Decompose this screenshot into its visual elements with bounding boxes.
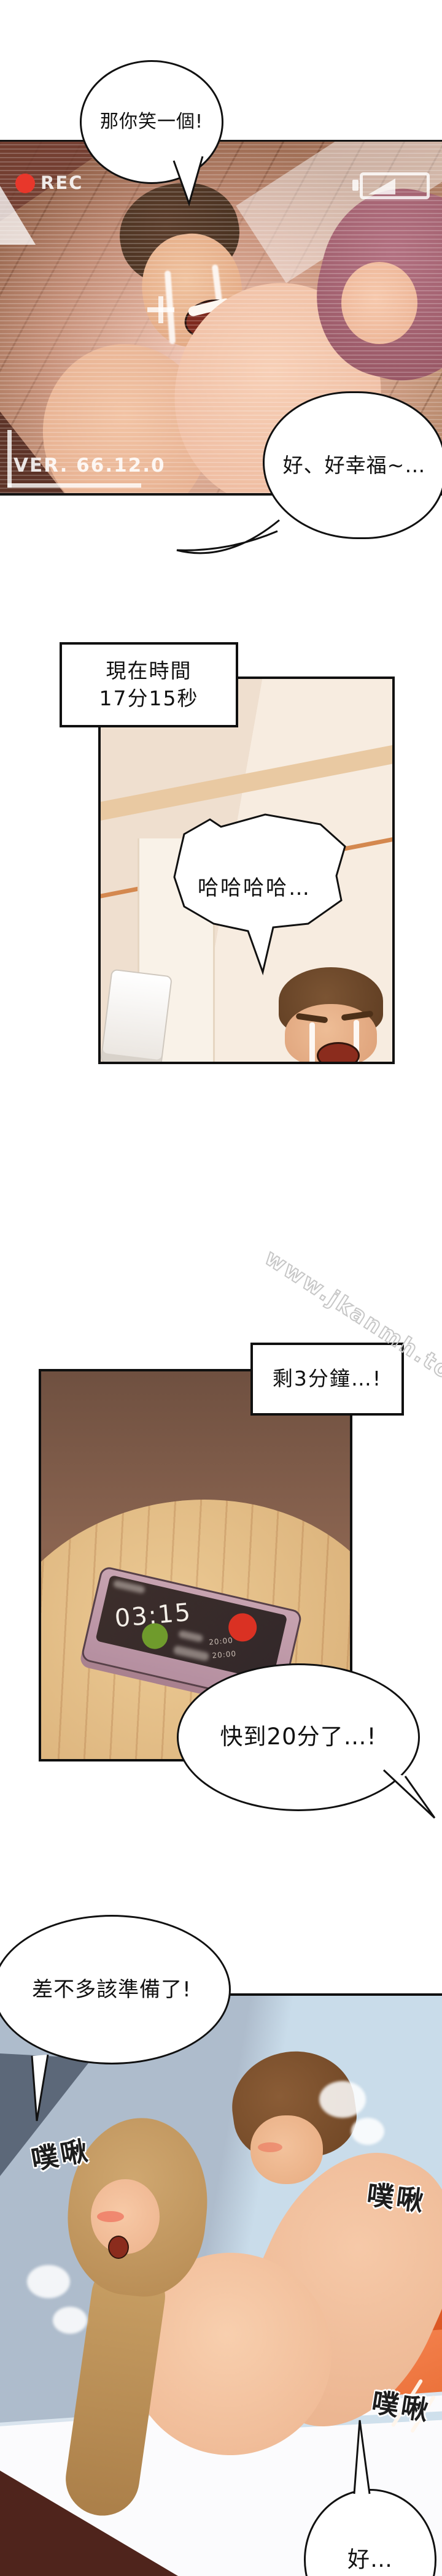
phone-alarm-label: 20:00 xyxy=(209,1636,234,1646)
speech-bubble-smile: 那你笑一個! xyxy=(80,60,223,184)
narration-line: 剩3分鐘…! xyxy=(273,1365,382,1393)
woman-mouth-shape xyxy=(108,2236,129,2259)
speech-text: 差不多該準備了! xyxy=(32,1977,192,2003)
man-teeth xyxy=(187,297,231,317)
speech-text: 好、好幸福~… xyxy=(283,453,426,478)
man-laughing-mouth xyxy=(317,1042,360,1064)
man-hair-shape xyxy=(110,172,249,296)
narration-line: 17分15秒 xyxy=(99,685,199,713)
panel-room-scene xyxy=(98,677,395,1064)
rec-dot-icon xyxy=(15,174,35,193)
blurred-status-text xyxy=(113,1579,145,1593)
panel-border xyxy=(216,1993,442,1996)
rec-label: REC xyxy=(41,172,83,193)
tear-streak xyxy=(212,264,227,338)
ceiling-trim-shape xyxy=(98,736,395,824)
speech-bubble-prepare: 差不多該準備了! xyxy=(0,1915,231,2064)
narration-line: 現在時間 xyxy=(106,657,192,685)
speech-bubble-twenty: 快到20分了…! xyxy=(177,1663,420,1811)
camera-corner-bracket-icon xyxy=(7,430,12,488)
light-streak xyxy=(236,140,442,283)
woman-hair-shape xyxy=(299,172,442,397)
narration-box-time: 現在時間 17分15秒 xyxy=(60,642,238,727)
man-laughing-mouth xyxy=(180,294,242,343)
blurred-caller-text xyxy=(178,1630,204,1643)
phone-alarm-label: 20:00 xyxy=(212,1649,237,1660)
laugh-bubble-text: 哈哈哈哈… xyxy=(198,871,311,901)
steam-puff xyxy=(319,2081,366,2118)
speech-text: 那你笑一個! xyxy=(100,110,203,134)
man-face-shape xyxy=(135,228,249,354)
blurred-caller-text xyxy=(173,1645,210,1662)
speech-text: 好… xyxy=(347,2546,393,2574)
blush-mark xyxy=(97,2211,124,2222)
speech-bubble-happy: 好、好幸福~… xyxy=(263,391,442,539)
webtoon-page: REC VER. 66.12.0 那你笑一個! 好、好幸福~… 現在時間 17分… xyxy=(0,0,442,2576)
camera-version-label: VER. 66.12.0 xyxy=(14,454,166,477)
steam-puff xyxy=(27,2265,70,2298)
sfx-text: 噗啾 xyxy=(365,2172,428,2218)
camera-corner-bracket-icon xyxy=(7,483,141,488)
camera-corner-bracket-icon xyxy=(0,186,36,245)
blush-mark xyxy=(258,2142,282,2152)
steam-puff xyxy=(351,2118,384,2145)
speech-text: 快到20分了…! xyxy=(220,1723,377,1751)
tear-streak xyxy=(309,1022,315,1064)
woman-face-shape xyxy=(341,262,417,344)
narration-box-minutes: 剩3分鐘…! xyxy=(250,1343,404,1416)
crosshair-icon xyxy=(147,307,174,312)
steam-puff xyxy=(53,2307,87,2334)
air-conditioner xyxy=(100,968,173,1064)
battery-icon xyxy=(352,180,359,191)
